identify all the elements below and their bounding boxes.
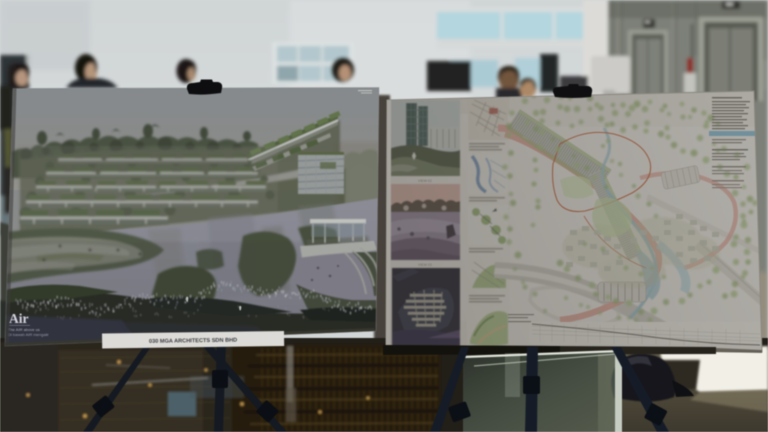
svg-text:030 MGA ARCHITECTS SDN BHD: 030 MGA ARCHITECTS SDN BHD [149, 338, 237, 345]
